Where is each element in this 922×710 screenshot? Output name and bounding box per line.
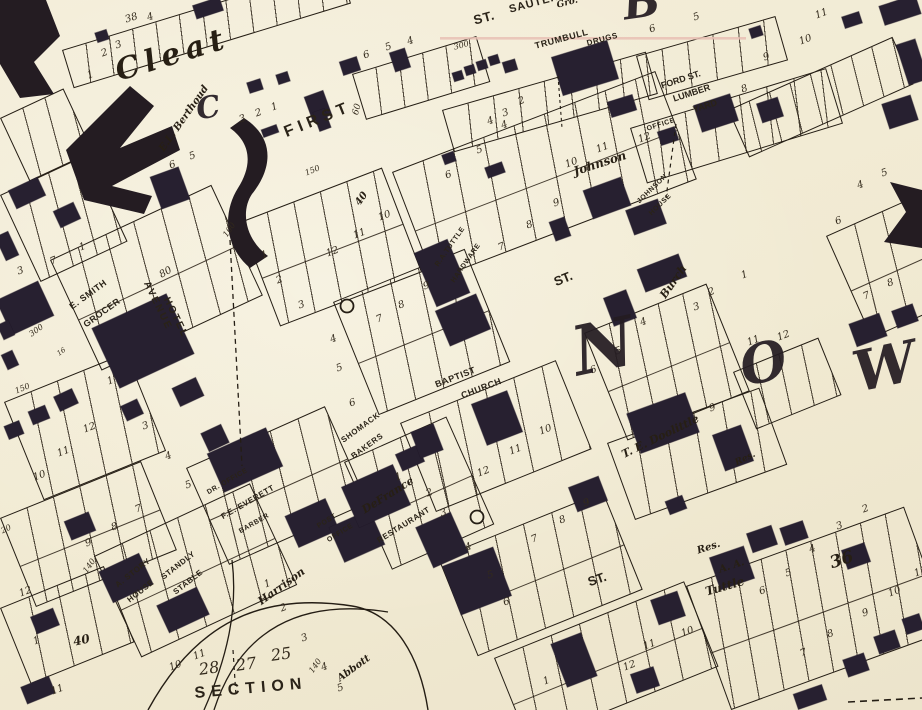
street-name-label: ST.: [472, 8, 496, 26]
lot-number: 4: [329, 334, 338, 346]
ornamental-letter: W: [848, 333, 921, 401]
ornamental-glyph-topleft: [0, 0, 60, 98]
dimension-label: 38: [124, 12, 139, 25]
lot-number: 5: [692, 12, 701, 24]
dimension-label: 16: [56, 347, 67, 358]
dimension-label: 4: [146, 12, 155, 23]
block-mid-lot-line: [514, 628, 703, 705]
street-name-label: SAUTER: [508, 0, 560, 16]
building-footprint: [247, 79, 264, 94]
lot-number: 6: [348, 398, 357, 410]
lot-number: 6: [834, 216, 843, 228]
lot-number: 3: [16, 266, 25, 278]
handwritten-label: Abbott: [336, 654, 372, 684]
lot-number: 11: [814, 8, 829, 22]
building-footprint: [261, 125, 279, 138]
dimension-label: 27: [235, 655, 257, 674]
handwritten-label: Gro.: [556, 0, 579, 11]
dimension-label: 150: [304, 164, 321, 177]
lot-number: 2: [861, 504, 870, 516]
dimension-label: 25: [270, 645, 292, 664]
handwritten-label: 40: [72, 633, 91, 648]
lot-number: 2: [254, 108, 263, 120]
lot-number: 1: [270, 102, 279, 114]
lot-number: 5: [336, 683, 345, 695]
ornamental-letter: C: [194, 92, 223, 126]
lot-number: 6: [362, 50, 371, 62]
lot-number: 11: [50, 684, 65, 698]
building-footprint: [172, 377, 204, 406]
lot-number: 4: [164, 451, 173, 463]
building-footprint: [1, 350, 19, 370]
building-footprint: [502, 59, 518, 73]
building-footprint: [842, 12, 863, 29]
lot-number: 4: [856, 180, 865, 192]
plat-map-canvas: FIRSTST.SAUTERST.ST.AVENUEHOTELFORD ST.L…: [0, 0, 922, 710]
lot-number: 1: [740, 270, 749, 282]
building-footprint: [746, 525, 777, 552]
building-footprint: [780, 521, 809, 546]
lot-number: 10: [168, 660, 183, 674]
ornamental-letter: B: [620, 0, 663, 28]
dimension-label: 60: [352, 103, 364, 116]
lot-number: 3: [300, 633, 309, 645]
lot-number: 5: [335, 363, 344, 375]
building-footprint: [879, 0, 921, 25]
lot-number: 2: [279, 603, 288, 615]
bottom-edge-dashes: [848, 698, 922, 702]
lot-number: 10: [798, 34, 813, 48]
building-footprint: [488, 54, 500, 66]
lot-number: 4: [320, 662, 329, 674]
building-footprint: [793, 685, 827, 710]
street-name-label: ST.: [552, 269, 574, 288]
lot-number: 5: [384, 42, 393, 54]
lot-number: 4: [406, 36, 415, 48]
building-footprint: [882, 95, 919, 129]
dimension-label: 28: [198, 659, 220, 678]
lot-number: 5: [880, 168, 889, 180]
building-footprint: [0, 231, 19, 260]
lot-number: 5: [188, 151, 197, 163]
building-footprint: [276, 71, 291, 84]
street-name-label: SECTION: [194, 676, 308, 702]
lot-number: 3: [238, 114, 247, 126]
